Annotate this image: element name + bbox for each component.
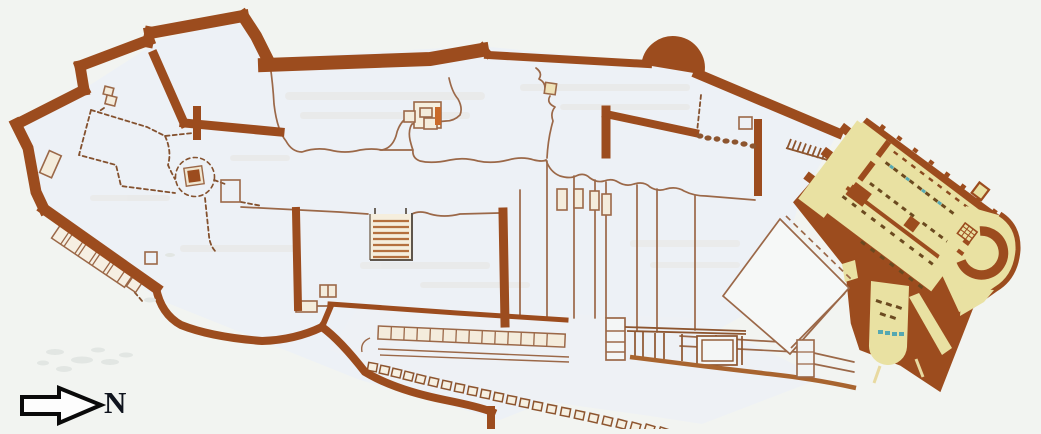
svg-text:N: N — [104, 385, 126, 420]
